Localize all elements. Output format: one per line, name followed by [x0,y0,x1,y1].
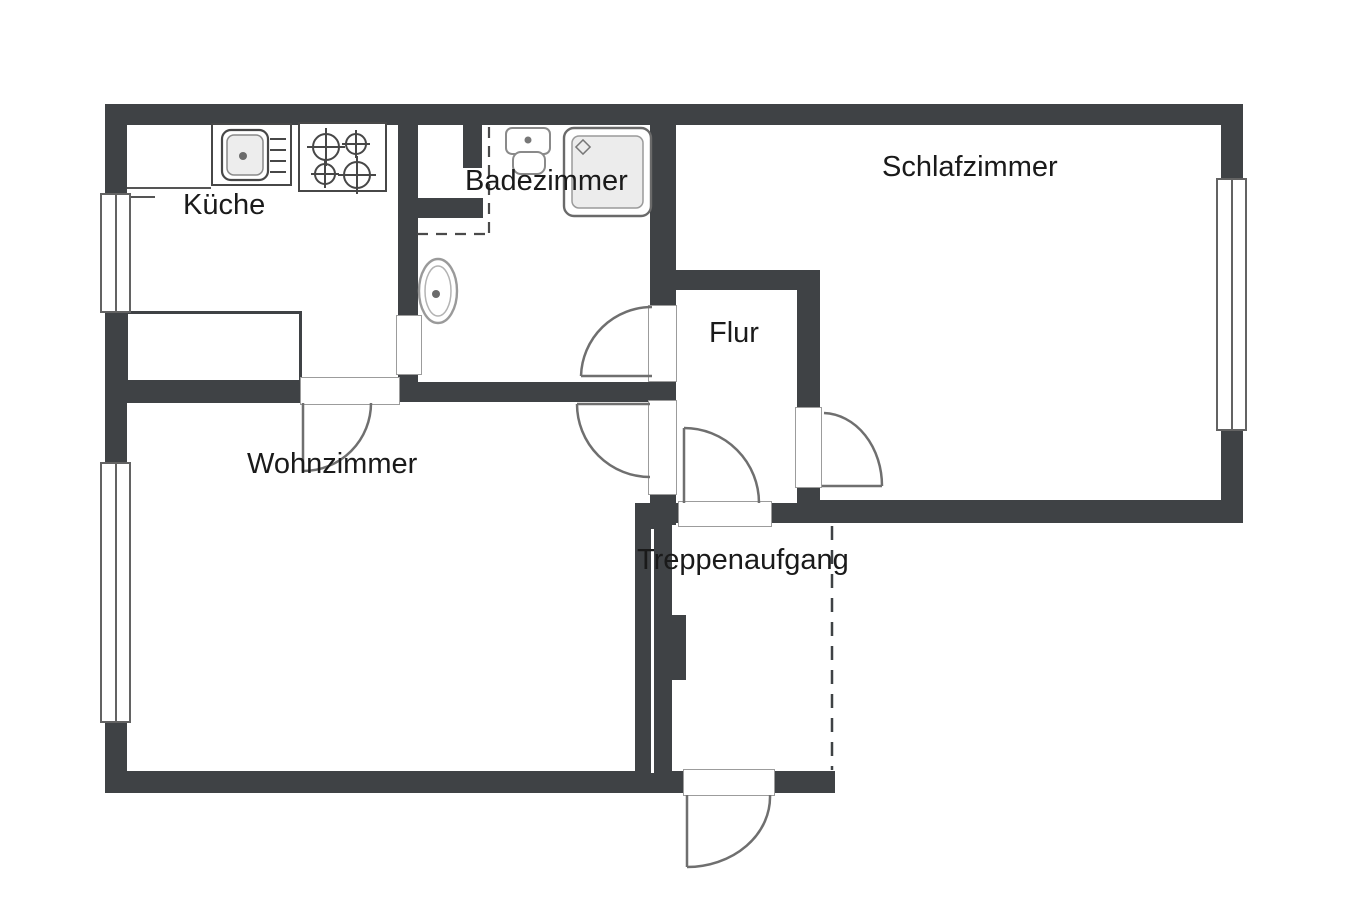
room-label-flur: Flur [709,318,759,348]
door-arc [577,404,650,477]
door-arc [687,795,770,867]
kitchen-sink-icon [222,130,286,180]
door-arc [684,428,759,503]
toilet-icon [419,259,457,323]
room-label-wohnzimmer: Wohnzimmer [247,449,417,479]
stove-burners-icon [307,128,376,194]
door-arc [824,413,882,486]
room-label-kueche: Küche [183,190,265,220]
floor-plan: Küche Badezimmer Schlafzimmer Flur Wohnz… [0,0,1348,900]
room-label-treppenaufgang: Treppenaufgang [637,545,849,575]
room-label-schlafzimmer: Schlafzimmer [882,152,1058,182]
plan-symbols [0,0,1348,900]
door-arc [581,307,652,376]
room-label-badezimmer: Badezimmer [465,166,628,196]
